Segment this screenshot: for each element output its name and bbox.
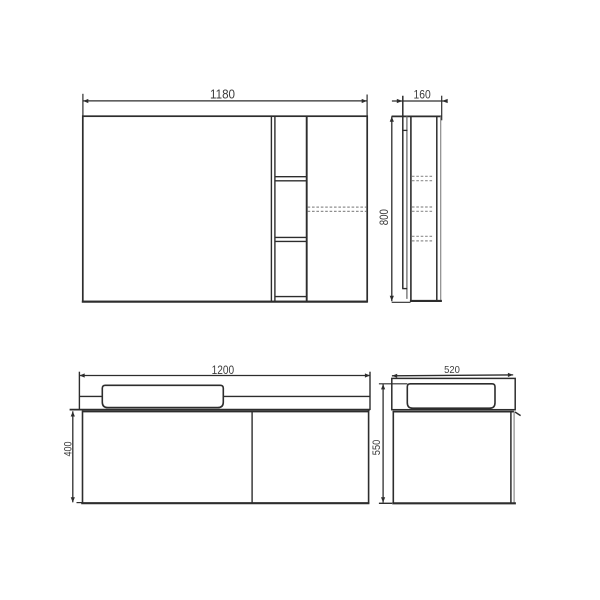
svg-text:400: 400 <box>62 441 74 456</box>
svg-text:160: 160 <box>414 88 432 102</box>
svg-text:1200: 1200 <box>212 363 235 377</box>
svg-text:800: 800 <box>379 209 391 225</box>
svg-text:550: 550 <box>371 440 383 456</box>
svg-text:1180: 1180 <box>210 88 235 102</box>
svg-text:520: 520 <box>444 365 460 376</box>
